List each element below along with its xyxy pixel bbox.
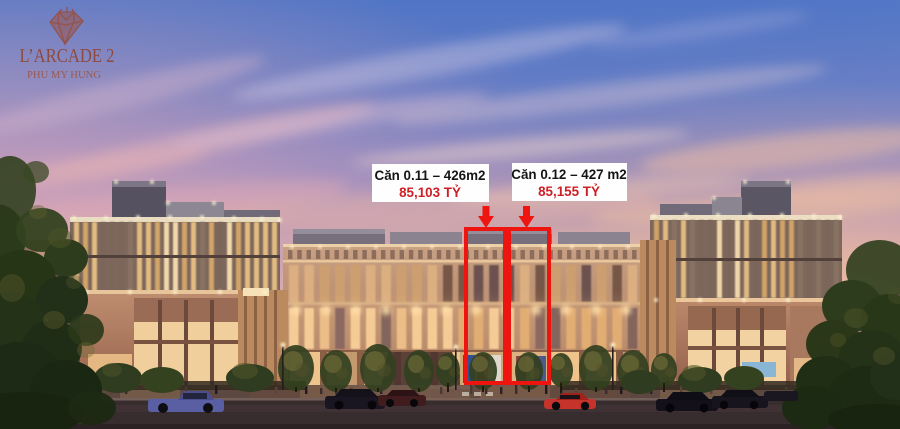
svg-text:L’ARCADE 2: L’ARCADE 2 [20, 45, 115, 67]
svg-text:PHU MY HUNG: PHU MY HUNG [27, 70, 101, 81]
svg-text:Căn 0.12 – 427 m2: Căn 0.12 – 427 m2 [511, 167, 626, 182]
svg-text:85,155 TỶ: 85,155 TỶ [538, 184, 600, 199]
svg-text:Căn 0.11 – 426m2: Căn 0.11 – 426m2 [375, 168, 486, 183]
svg-text:85,103 TỶ: 85,103 TỶ [399, 185, 461, 200]
